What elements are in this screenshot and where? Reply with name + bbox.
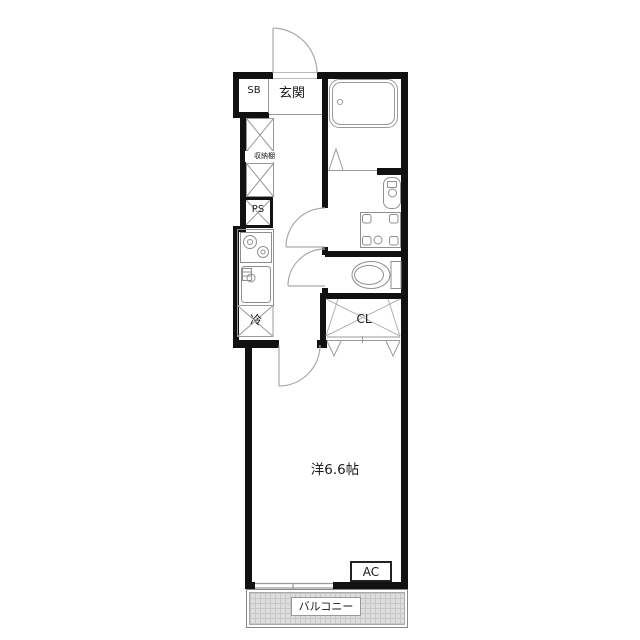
entrance-label: 玄関 [272,85,312,101]
room-door-icon [279,345,320,386]
air-conditioner-box: AC [350,561,392,582]
refrigerator-label: 冷 [242,312,270,328]
entrance-door-icon [273,28,317,73]
kitchen-sink-icon [242,267,271,303]
closet-label: CL [350,312,378,326]
kitchen-counter-icon [238,230,274,306]
pipe-space-label: PS [243,203,273,217]
bath-folding-door-icon [328,149,377,171]
washbasin-icon [384,178,401,209]
bathtub-icon [330,80,398,128]
shoe-box-label: SB [240,84,268,98]
entrance-opening [273,73,317,79]
western-room-label: 洋6.6帖 [290,463,380,479]
toilet-icon [352,262,401,289]
storage-shelf-label: 収納棚 [245,151,284,162]
balcony-label-box: バルコニー [291,597,361,616]
closet-bifold-door-icon [327,336,400,356]
air-conditioner-label: AC [363,566,379,578]
stove-burners-icon [244,236,269,258]
floorplan: AC バルコニー SB 玄関 収納棚 PS 冷 CL 洋6.6帖 [0,0,640,640]
floorplan-linework [0,0,640,640]
toilet-door-icon [288,249,325,286]
balcony-label: バルコニー [299,601,354,612]
washroom-door-icon [286,208,325,247]
washing-machine-pan-icon [361,213,401,248]
